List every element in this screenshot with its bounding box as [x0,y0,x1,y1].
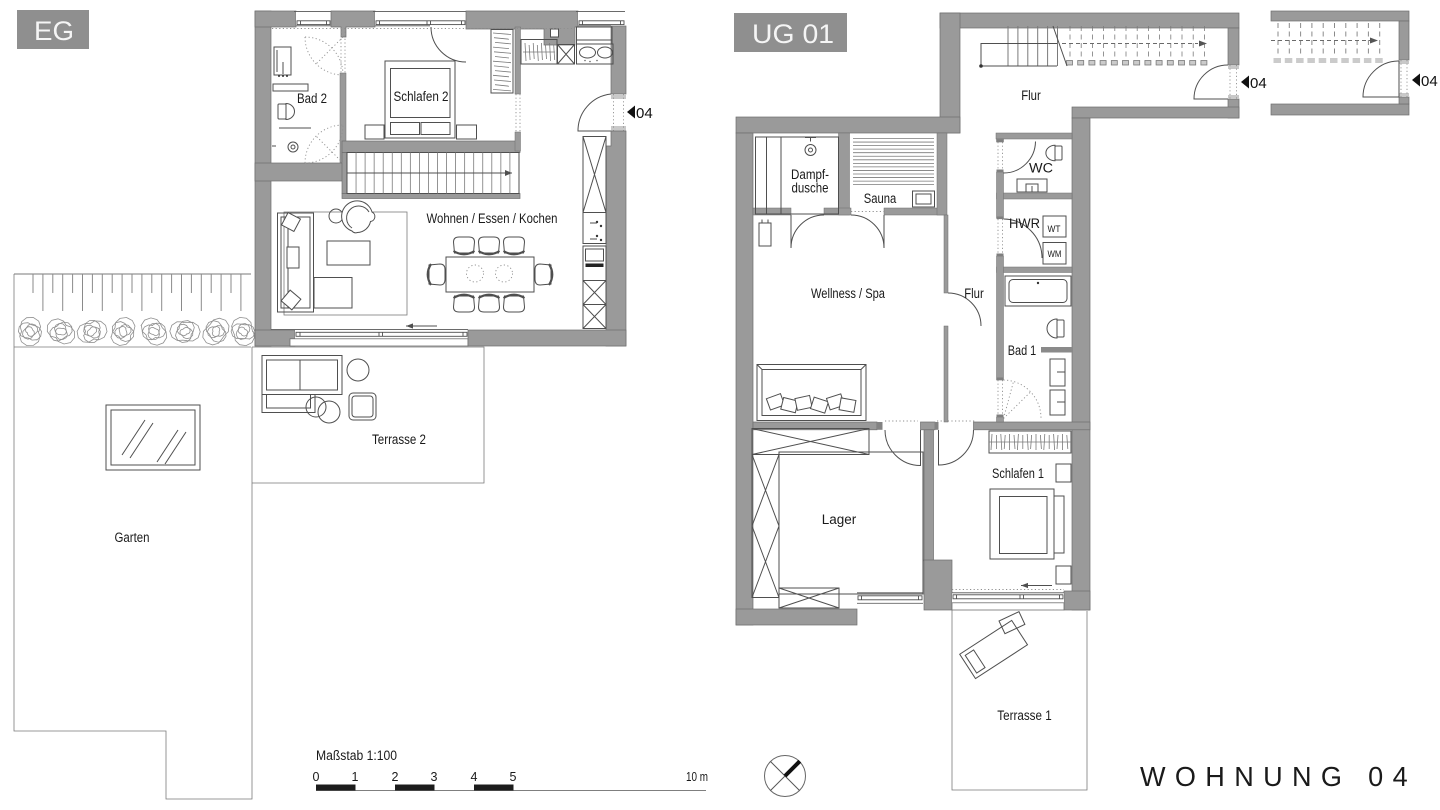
svg-text:3: 3 [431,770,438,784]
svg-text:WC: WC [1029,161,1053,176]
svg-text:EG: EG [34,16,74,46]
svg-text:2: 2 [392,770,399,784]
svg-text:Flur: Flur [964,286,984,301]
svg-text:Terrasse 1: Terrasse 1 [997,708,1052,723]
svg-text:Bad 1: Bad 1 [1008,343,1037,358]
svg-text:Schlafen 2: Schlafen 2 [394,89,449,104]
svg-text:04: 04 [1250,75,1267,92]
svg-text:Flur: Flur [1021,88,1041,103]
svg-text:Maßstab 1:100: Maßstab 1:100 [316,748,397,763]
svg-text:UG 01: UG 01 [752,19,834,49]
svg-text:Wellness / Spa: Wellness / Spa [811,286,885,301]
svg-text:4: 4 [471,770,478,784]
svg-text:Sauna: Sauna [864,191,897,206]
svg-text:5: 5 [510,770,517,784]
svg-text:Garten: Garten [115,530,150,545]
svg-text:Bad 2: Bad 2 [297,91,327,106]
svg-text:Lager: Lager [822,512,857,527]
svg-text:dusche: dusche [792,181,829,196]
svg-text:Schlafen 1: Schlafen 1 [992,466,1044,481]
svg-text:0: 0 [313,770,320,784]
svg-text:04: 04 [636,105,653,122]
svg-text:10 m: 10 m [686,770,708,784]
svg-text:04: 04 [1421,73,1438,90]
svg-text:1: 1 [352,770,359,784]
svg-text:WM: WM [1048,249,1062,260]
svg-text:Terrasse 2: Terrasse 2 [372,432,426,447]
svg-text:HWR: HWR [1009,216,1040,231]
svg-text:Wohnen / Essen / Kochen: Wohnen / Essen / Kochen [427,211,558,226]
svg-text:WT: WT [1048,224,1061,235]
svg-text:WOHNUNG 04: WOHNUNG 04 [1140,761,1417,792]
